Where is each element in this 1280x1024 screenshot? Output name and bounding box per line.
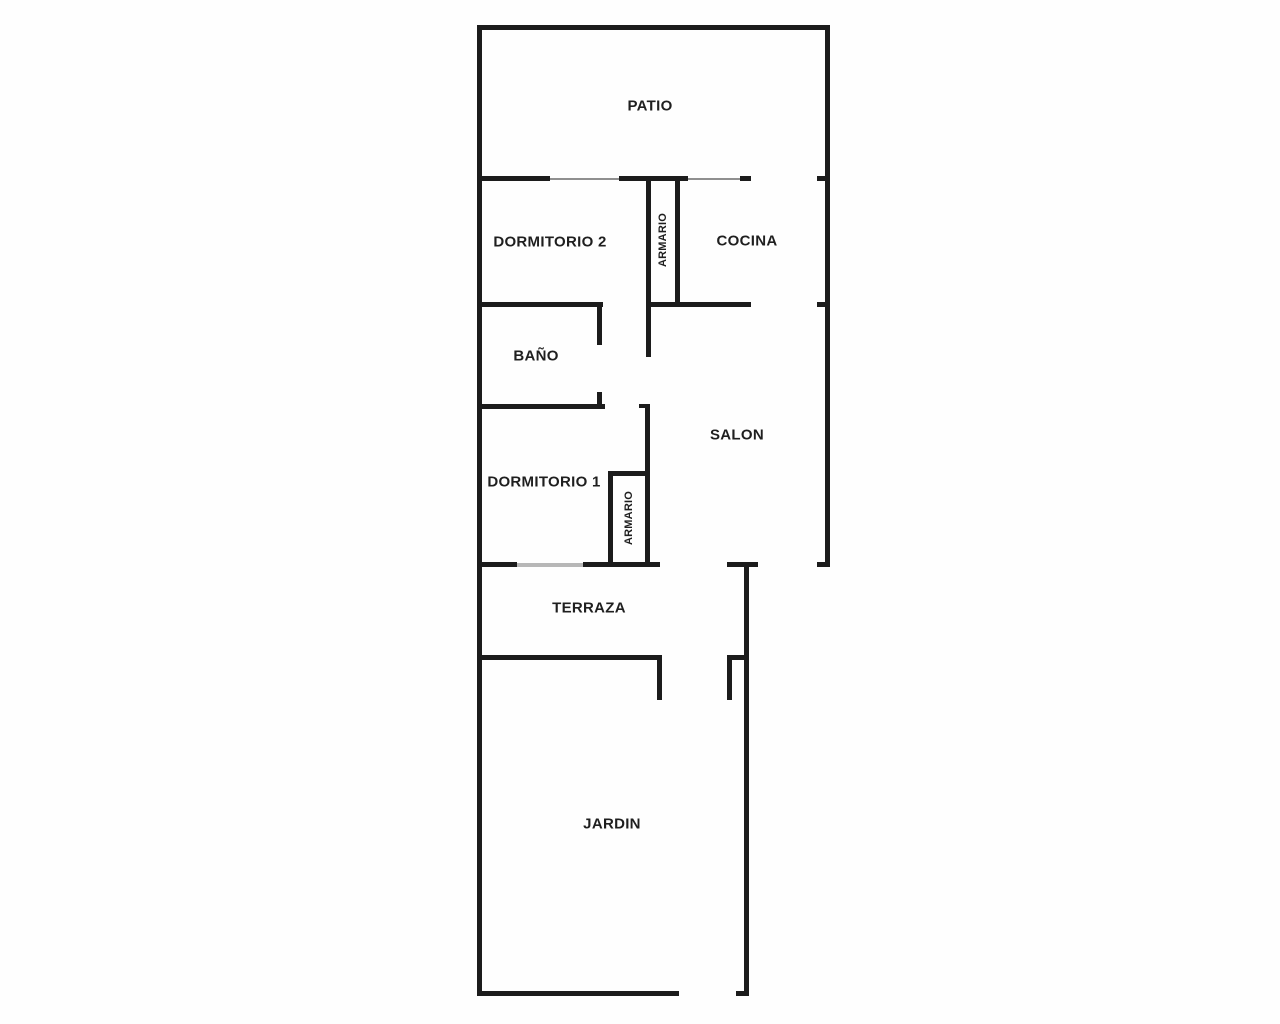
passage-gate-stub-down: [727, 655, 732, 700]
jardin-south-wall: [477, 991, 679, 996]
cocina-south-east-nub: [817, 302, 825, 307]
room-label-dormitorio2: DORMITORIO 2: [493, 234, 606, 251]
patio-dormitorio2-door-line: [550, 178, 619, 180]
room-label-terraza: TERRAZA: [552, 600, 626, 617]
bano-east-wall-upper-stub: [597, 302, 602, 345]
salon-west-wall: [645, 404, 650, 566]
dormitorio1-south-wall-west: [477, 562, 517, 567]
outer-north-wall: [477, 25, 830, 30]
armario-bottom-north-wall: [608, 471, 649, 476]
dormitorio1-south-wall-east: [583, 562, 660, 567]
patio-south-wall-west: [477, 176, 550, 181]
room-label-dormitorio1: DORMITORIO 1: [487, 474, 600, 491]
terraza-south-stub-down: [657, 655, 662, 700]
bano-south-wall: [477, 404, 605, 409]
room-label-armario-top: ARMARIO: [657, 213, 669, 267]
room-label-patio: PATIO: [627, 98, 672, 115]
cocina-south-wall: [646, 302, 751, 307]
salon-south-wall-segment: [727, 562, 758, 567]
outer-east-wall: [825, 25, 830, 566]
room-label-jardin: JARDIN: [583, 816, 641, 833]
patio-south-wall-dash: [740, 176, 751, 181]
room-label-salon: SALON: [710, 427, 764, 444]
passage-east-wall: [744, 562, 749, 996]
jardin-south-wall-east: [736, 991, 749, 996]
dormitorio1-terraza-door-line: [517, 563, 583, 567]
outer-east-wall-end-cap: [817, 562, 830, 567]
patio-south-wall-east-nub: [817, 176, 825, 181]
armario-top-west-wall: [646, 176, 651, 357]
terraza-south-wall: [477, 655, 662, 660]
salon-west-wall-top-tick: [639, 404, 646, 408]
armario-top-east-wall: [675, 176, 680, 307]
patio-cocina-door-line: [688, 178, 740, 180]
room-label-cocina: COCINA: [717, 233, 778, 250]
armario-bottom-west-wall: [608, 471, 613, 566]
room-label-bano: BAÑO: [513, 348, 558, 365]
room-label-armario-bottom: ARMARIO: [623, 491, 635, 545]
dormitorio2-south-wall: [477, 302, 603, 307]
outer-west-wall: [477, 25, 482, 996]
floorplan-canvas: PATIO DORMITORIO 2 ARMARIO COCINA BAÑO S…: [0, 0, 1280, 1024]
